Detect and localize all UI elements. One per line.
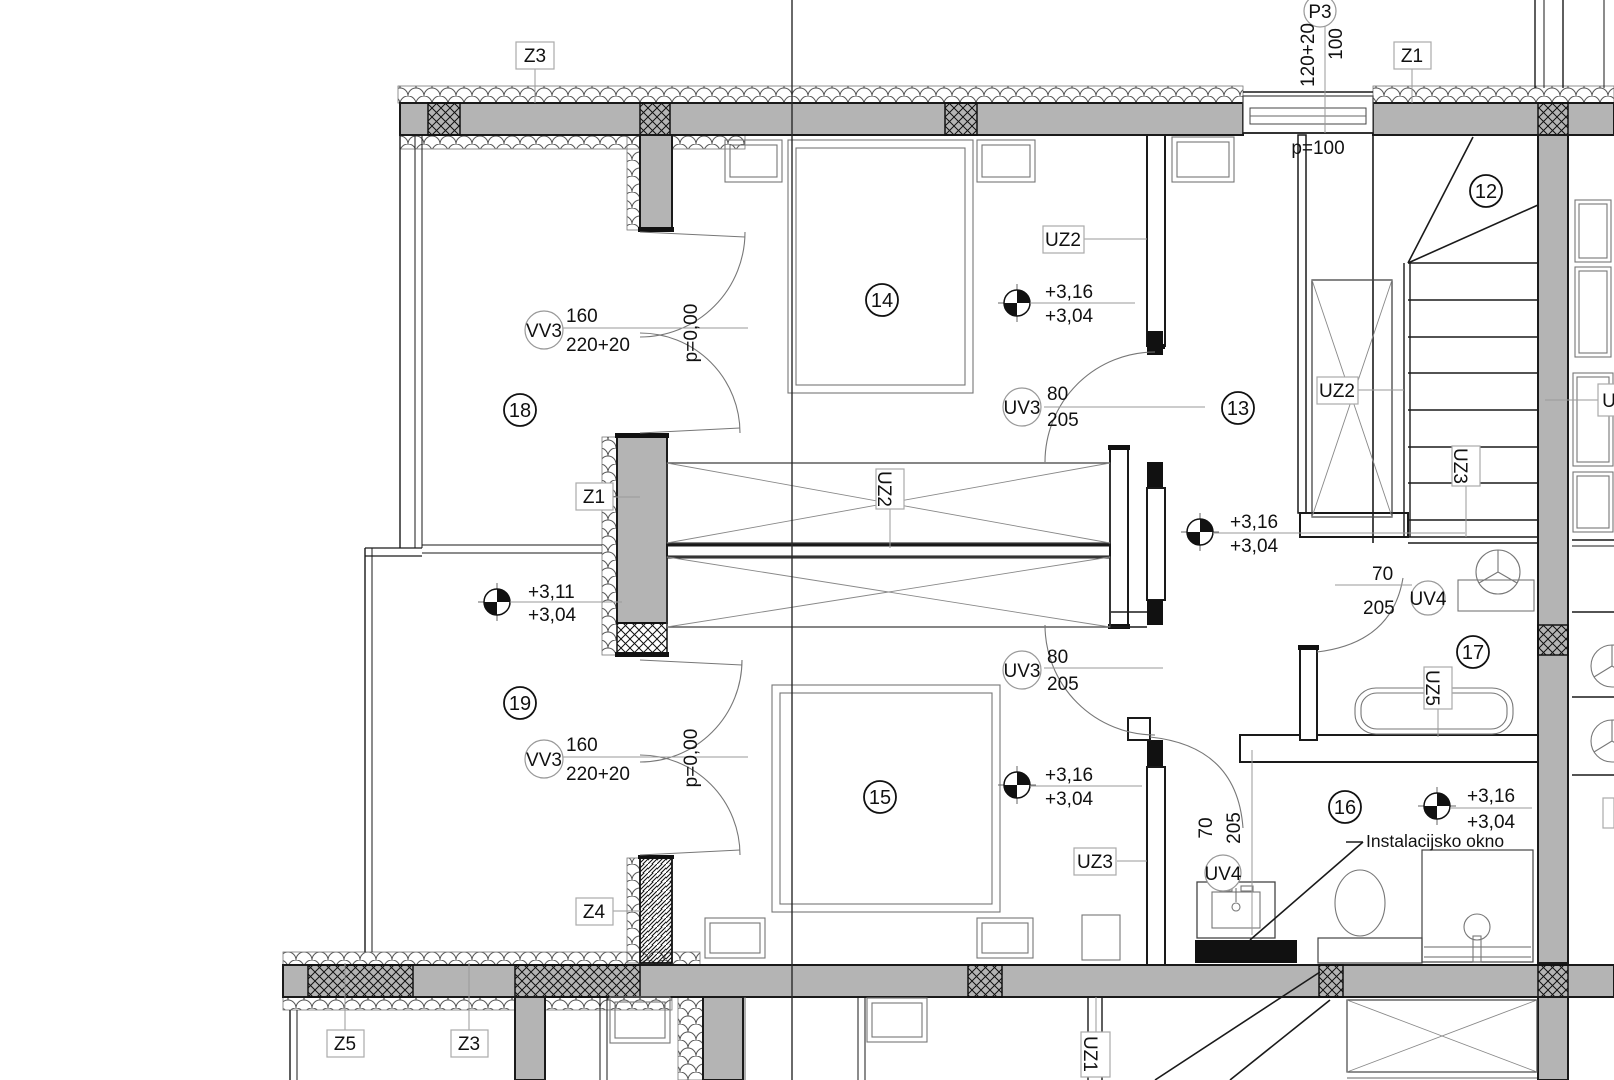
wall-tag-uz3-stair: UZ3	[1449, 448, 1470, 484]
door-threshold: p=0,00	[681, 304, 702, 363]
door-tag-uv4-17: UV4	[1410, 589, 1447, 610]
floor-plan-drawing: +3,16 +3,04 +3,16 +3,04 +3,11 +3,04 +3,1…	[0, 0, 1614, 1080]
wall-tag-z5: Z5	[334, 1034, 356, 1055]
door-dim-height: 220+20	[566, 335, 630, 356]
wall-z4	[640, 858, 672, 963]
room-number-13: 13	[1227, 398, 1249, 420]
wall-tag-u-clipped: U	[1602, 391, 1614, 412]
window-parapet: p=100	[1291, 138, 1344, 159]
level-value: +3,04	[1467, 812, 1516, 833]
wall-tag-z3-top: Z3	[524, 46, 546, 67]
door-dim-width: 80	[1047, 384, 1068, 405]
door-threshold: p=0,00	[681, 729, 702, 788]
washbasin	[1197, 882, 1275, 938]
door-dim-width: 70	[1196, 817, 1217, 838]
wall-tag-uz2-stair: UZ2	[1319, 381, 1355, 402]
room-number-16: 16	[1334, 797, 1356, 819]
wall-tag-uz2-mid: UZ2	[873, 471, 894, 507]
level-value: +3,11	[528, 582, 575, 603]
door-tag-vv3-top: VV3	[526, 321, 562, 342]
level-value: +3,16	[1045, 282, 1093, 303]
level-value: +3,16	[1467, 786, 1515, 807]
wall-tag-z1-top: Z1	[1401, 46, 1423, 67]
window-tag-p3: P3	[1308, 2, 1331, 23]
door-tag-uv3-top: UV3	[1004, 398, 1041, 419]
window-dim-height: 120+20	[1298, 23, 1319, 87]
level-value: +3,04	[1045, 789, 1094, 810]
wall-tag-uz5: UZ5	[1421, 670, 1442, 706]
door-dim-width: 70	[1372, 564, 1393, 585]
window-dim-width: 100	[1326, 28, 1347, 60]
installation-window-label: Instalacijsko okno	[1366, 831, 1504, 851]
door-dim-width: 160	[566, 735, 598, 756]
room-number-19: 19	[509, 693, 531, 715]
door-tag-uv3-bottom: UV3	[1004, 661, 1041, 682]
door-dim-height: 205	[1047, 410, 1079, 431]
room-number-17: 17	[1462, 642, 1484, 664]
level-value: +3,04	[1230, 536, 1279, 557]
installation-box	[1195, 940, 1297, 963]
door-dim-height: 220+20	[566, 764, 630, 785]
door-dim-width: 160	[566, 306, 598, 327]
level-value: +3,04	[1045, 306, 1094, 327]
room-number-12: 12	[1475, 181, 1497, 203]
door-dim-width: 80	[1047, 647, 1068, 668]
room-number-15: 15	[869, 787, 891, 809]
wall-tag-z3-bottom: Z3	[458, 1034, 480, 1055]
level-value: +3,04	[528, 605, 577, 626]
wall-tag-uz3-bottom: UZ3	[1077, 852, 1113, 873]
door-dim-height: 205	[1363, 598, 1395, 619]
wall-tag-z1-left: Z1	[583, 487, 605, 508]
door-dim-height: 205	[1224, 812, 1245, 844]
wall-tag-uz2-top: UZ2	[1045, 230, 1081, 251]
window-p3	[1243, 92, 1373, 133]
door-dim-height: 205	[1047, 674, 1079, 695]
room-number-18: 18	[509, 400, 531, 422]
wall-tag-uz1: UZ1	[1079, 1036, 1100, 1072]
level-value: +3,16	[1045, 765, 1093, 786]
room-number-14: 14	[871, 290, 893, 312]
wall-tag-z4: Z4	[583, 902, 606, 923]
floor-plan-page: +3,16 +3,04 +3,16 +3,04 +3,11 +3,04 +3,1…	[0, 0, 1614, 1080]
level-value: +3,16	[1230, 512, 1278, 533]
door-tag-vv3-bottom: VV3	[526, 750, 562, 771]
paper-background	[0, 0, 1614, 1080]
door-tag-uv4-16: UV4	[1205, 864, 1242, 885]
